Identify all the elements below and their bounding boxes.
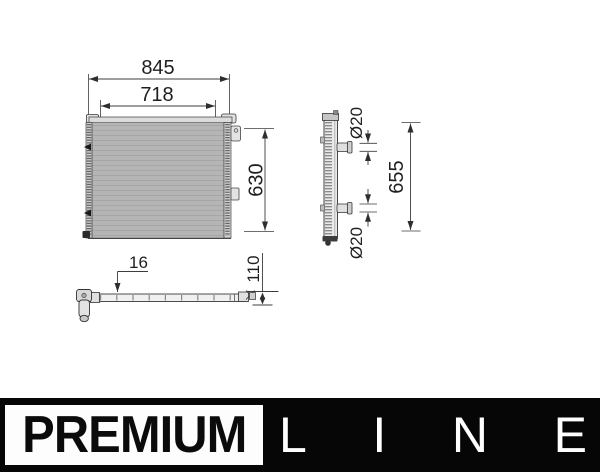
overall-height-label: 655 bbox=[386, 160, 408, 193]
port-bottom-label: Ø20 bbox=[347, 227, 366, 259]
overall-depth-label: 110 bbox=[244, 255, 263, 282]
bottom-port-stub bbox=[337, 204, 348, 213]
premium-logo-text: PREMIUM bbox=[22, 409, 246, 461]
radiator-core bbox=[92, 123, 224, 239]
radiator-top-body bbox=[77, 290, 256, 322]
line-letter-e: E bbox=[554, 410, 587, 460]
bottom-view: 16 110 bbox=[77, 253, 279, 322]
core-height-label: 630 bbox=[246, 163, 268, 196]
dimension-core-width: 718 bbox=[101, 84, 216, 119]
core-depth-label: 16 bbox=[129, 253, 148, 272]
premium-line-logo-bar: PREMIUM L I N E bbox=[0, 398, 600, 472]
overall-width-label: 845 bbox=[141, 57, 174, 79]
dimension-overall-height: 655 bbox=[386, 123, 421, 232]
dimension-core-height: 630 bbox=[244, 129, 274, 232]
top-port-stub bbox=[337, 143, 348, 152]
side-view: Ø20 Ø20 655 bbox=[321, 107, 421, 259]
radiator-front-body bbox=[83, 114, 241, 239]
line-letter-l: L bbox=[279, 410, 307, 460]
front-view: 845 718 bbox=[83, 57, 275, 239]
right-bracket-mid bbox=[231, 188, 239, 200]
line-letter-n: N bbox=[452, 410, 488, 460]
line-logo-text: L I N E bbox=[279, 405, 587, 465]
right-bracket-top bbox=[231, 126, 241, 141]
port-top-label: Ø20 bbox=[347, 107, 366, 139]
dimension-port-bottom: Ø20 bbox=[347, 189, 377, 259]
right-end-clip bbox=[239, 292, 249, 302]
dimension-port-top: Ø20 bbox=[347, 107, 377, 165]
premium-logo-box: PREMIUM bbox=[5, 405, 263, 465]
dimension-core-depth: 16 bbox=[118, 253, 149, 292]
core-width-label: 718 bbox=[140, 84, 173, 106]
page: 845 718 bbox=[0, 0, 600, 472]
line-letter-i: I bbox=[372, 410, 386, 460]
technical-drawing-canvas: 845 718 bbox=[0, 0, 600, 398]
